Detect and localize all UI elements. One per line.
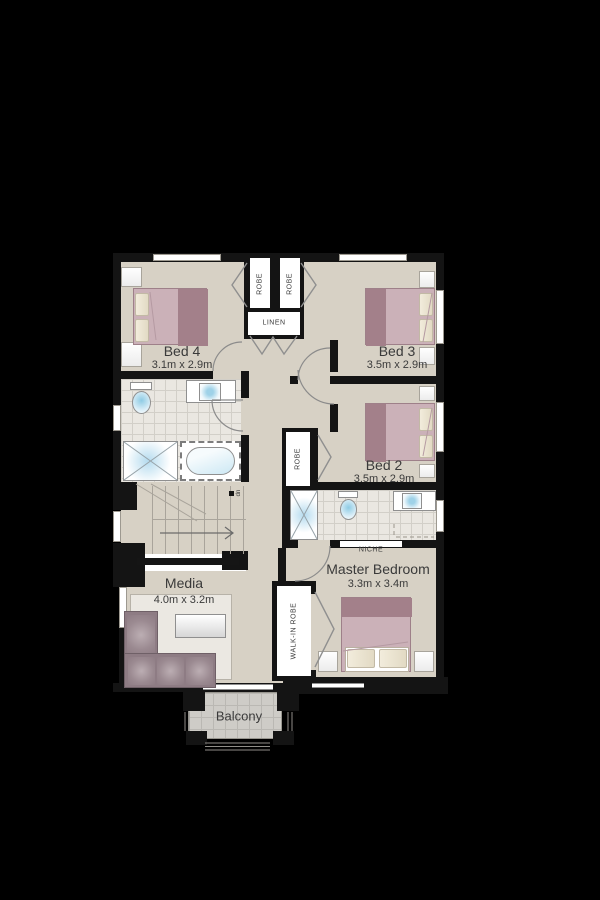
bed2-linen-fold: [423, 408, 432, 456]
balcony-rail-right: [288, 712, 292, 731]
master-name: Master Bedroom: [326, 561, 429, 577]
bifold-robe-bed2: [318, 435, 331, 480]
door-arc-bathroom: [212, 400, 243, 431]
master-bed-fold: [343, 642, 408, 651]
shower-x-ensuite: [291, 491, 317, 539]
door-arc-bed4: [213, 342, 242, 371]
bed3-name: Bed 3: [379, 343, 416, 359]
master-dims: 3.3m x 3.4m: [348, 578, 409, 590]
bed4-name: Bed 4: [164, 343, 201, 359]
bifold-linen: [250, 336, 297, 354]
balcony-rail-left: [185, 712, 189, 731]
bed3-linen-fold: [423, 293, 432, 342]
shower-x-bathroom: [124, 442, 177, 480]
bed2-name: Bed 2: [366, 457, 403, 473]
door-arc-master: [295, 546, 330, 581]
bifold-walk-in-robe: [315, 592, 334, 667]
bed3-dims: 3.5m x 2.9m: [367, 359, 428, 371]
stair-down-label: dn: [236, 490, 242, 497]
ensuite-robe-dashed: [394, 524, 434, 537]
balcony-rail-bottom: [205, 743, 270, 750]
bed4-linen-fold: [150, 292, 156, 340]
robe-left-label: ROBE: [257, 273, 264, 295]
bed4-dims: 3.1m x 2.9m: [152, 359, 213, 371]
balcony-name: Balcony: [216, 709, 262, 724]
door-arc-bed2: [298, 370, 334, 404]
media-name: Media: [165, 575, 203, 591]
floor-plan: Bed 4 3.1m x 2.9m Bed 3 3.5m x 2.9m Bed …: [0, 0, 600, 900]
robe-bed2-label: ROBE: [295, 448, 302, 470]
robe-right-label: ROBE: [287, 273, 294, 295]
bifold-robe-left: [232, 263, 247, 307]
door-arc-bed3: [298, 348, 330, 380]
bifold-robe-right: [301, 263, 316, 307]
media-dims: 4.0m x 3.2m: [154, 594, 215, 606]
linen-label: LINEN: [262, 320, 285, 327]
niche-label: NICHE: [359, 547, 383, 554]
walk-in-robe-label: WALK-IN ROBE: [291, 603, 298, 660]
bed2-dims: 3.5m x 2.9m: [354, 473, 415, 485]
stair-cut-lines: [136, 484, 206, 521]
